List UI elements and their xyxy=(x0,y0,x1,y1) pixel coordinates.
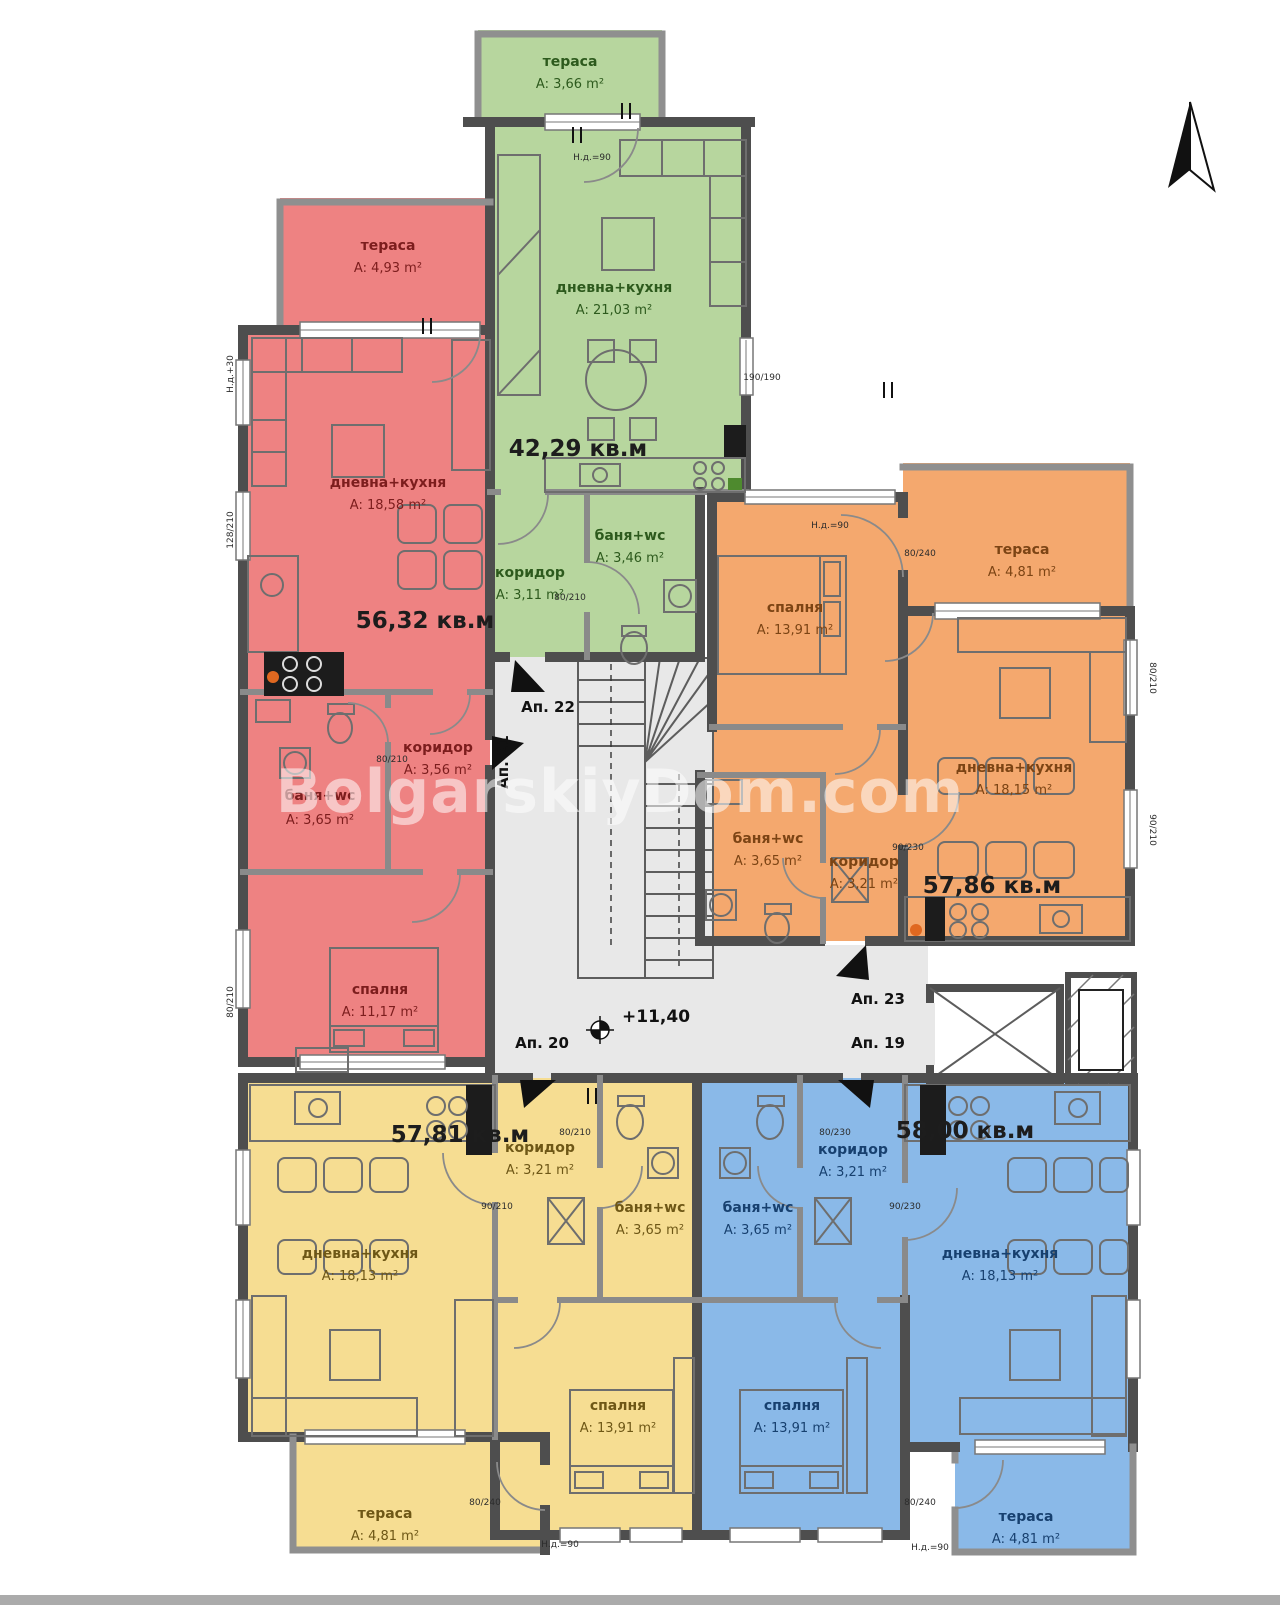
room-area: A: 13,91 m² xyxy=(580,1421,656,1436)
fridge xyxy=(724,425,746,457)
dim-label: 128/210 xyxy=(226,511,236,549)
dim-label: Н.д.=90 xyxy=(541,1540,579,1550)
dim-label: 80/240 xyxy=(904,549,936,559)
room-area: A: 3,46 m² xyxy=(596,551,664,566)
dim-label: 90/210 xyxy=(1147,814,1157,846)
floor-plan-page: тераса A: 3,66 m² дневна+кухня A: 21,03 … xyxy=(0,0,1280,1605)
dim-label: Н.д.=90 xyxy=(811,521,849,531)
stove xyxy=(925,897,945,941)
apartment-number: Ап. 20 xyxy=(515,1034,569,1052)
room-label: тераса xyxy=(995,542,1050,558)
room-label: коридор xyxy=(829,854,899,870)
room-label: тераса xyxy=(543,54,598,70)
room-area: A: 13,91 m² xyxy=(754,1421,830,1436)
bottom-band xyxy=(0,1595,1280,1605)
apartment-total: 58,00 кв.м xyxy=(896,1118,1034,1144)
room-label: коридор xyxy=(403,740,473,756)
dim-label: 90/230 xyxy=(889,1202,921,1212)
room-area: A: 11,17 m² xyxy=(342,1005,418,1020)
dim-label: Н.д.=90 xyxy=(573,153,611,163)
dim-label: 80/240 xyxy=(469,1498,501,1508)
room-area: A: 3,21 m² xyxy=(830,877,898,892)
apartment-total: 56,32 кв.м xyxy=(356,608,494,634)
room-label: спалня xyxy=(767,600,823,616)
room-label: тераса xyxy=(999,1509,1054,1525)
room-area: A: 4,81 m² xyxy=(351,1529,419,1544)
room-area: A: 4,93 m² xyxy=(354,261,422,276)
room-label: баня+wc xyxy=(615,1200,686,1216)
apartment-number: Ап. 22 xyxy=(521,698,575,716)
elevator xyxy=(925,988,1060,1080)
dim-label: 80/210 xyxy=(226,986,236,1018)
room-label: дневна+кухня xyxy=(302,1246,419,1262)
apartment-total: 57,86 кв.м xyxy=(923,873,1061,899)
room-label: дневна+кухня xyxy=(330,475,447,491)
room-area: A: 4,81 m² xyxy=(992,1532,1060,1547)
room-area: A: 3,65 m² xyxy=(724,1223,792,1238)
room-area: A: 18,15 m² xyxy=(976,783,1052,798)
apartment-number: Ап. 23 xyxy=(851,990,905,1008)
dim-label: Н.д.+30 xyxy=(226,355,236,393)
room-label: спалня xyxy=(352,982,408,998)
room-area: A: 3,21 m² xyxy=(819,1165,887,1180)
room-area: A: 18,13 m² xyxy=(962,1269,1038,1284)
elevator-door xyxy=(925,1003,935,1065)
dim-label: Н.д.=90 xyxy=(911,1543,949,1553)
room-area: A: 3,21 m² xyxy=(506,1163,574,1178)
room-area: A: 4,81 m² xyxy=(988,565,1056,580)
dim-label: 190/190 xyxy=(743,373,781,383)
orange-main-fill xyxy=(712,463,1130,941)
room-label: дневна+кухня xyxy=(956,760,1073,776)
shaft-hatched xyxy=(1068,975,1134,1083)
dim-label: 80/230 xyxy=(819,1128,851,1138)
room-area: A: 3,65 m² xyxy=(616,1223,684,1238)
room-label: коридор xyxy=(505,1140,575,1156)
watermark: BolgarskiyDom.com xyxy=(276,757,964,827)
north-arrow-icon xyxy=(1168,102,1214,190)
dim-label: 80/240 xyxy=(904,1498,936,1508)
room-label: коридор xyxy=(495,565,565,581)
apartment-total: 42,29 кв.м xyxy=(509,436,647,462)
green-terrace-fill xyxy=(478,30,662,122)
room-area: A: 13,91 m² xyxy=(757,623,833,638)
room-label: спалня xyxy=(764,1398,820,1414)
dim-label: 90/210 xyxy=(481,1202,513,1212)
blue-main-fill xyxy=(697,1078,1133,1552)
dim-label: 80/210 xyxy=(559,1128,591,1138)
room-area: A: 18,13 m² xyxy=(322,1269,398,1284)
room-label: тераса xyxy=(361,238,416,254)
room-label: коридор xyxy=(818,1142,888,1158)
floor-plan-canvas: тераса A: 3,66 m² дневна+кухня A: 21,03 … xyxy=(0,0,1280,1605)
dim-label: 80/210 xyxy=(1147,662,1157,694)
room-label: дневна+кухня xyxy=(556,280,673,296)
room-area: A: 3,65 m² xyxy=(734,854,802,869)
level-mark: +11,40 xyxy=(622,1007,690,1027)
room-label: баня+wc xyxy=(733,831,804,847)
room-label: тераса xyxy=(358,1506,413,1522)
room-label: дневна+кухня xyxy=(942,1246,1059,1262)
dim-label: 80/210 xyxy=(554,593,586,603)
room-area: A: 18,58 m² xyxy=(350,498,426,513)
room-label: баня+wc xyxy=(723,1200,794,1216)
room-label: баня+wc xyxy=(595,528,666,544)
room-area: A: 3,66 m² xyxy=(536,77,604,92)
dim-label: 90/230 xyxy=(892,843,924,853)
room-area: A: 21,03 m² xyxy=(576,303,652,318)
room-label: спалня xyxy=(590,1398,646,1414)
apartment-number: Ап. 19 xyxy=(851,1034,905,1052)
